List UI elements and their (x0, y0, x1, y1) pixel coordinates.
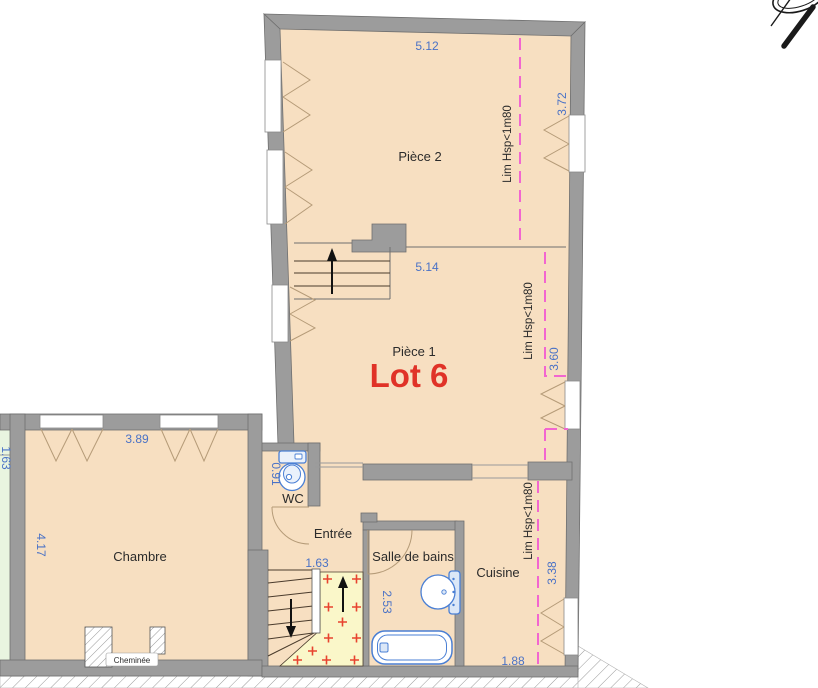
sdb-label: Salle de bains (372, 549, 454, 564)
window-piece1-right (565, 381, 580, 429)
wall-piece1-south-b (528, 462, 572, 480)
entree-label: Entrée (314, 526, 352, 541)
window-piece2-right (569, 115, 585, 172)
wall-wc-right (308, 443, 320, 506)
dim-piece1-width: 5.14 (415, 260, 439, 274)
dim-cuisine-width: 1.88 (501, 654, 525, 668)
dim-stair-width: 1.63 (305, 556, 329, 570)
window-piece1-left (272, 285, 288, 342)
dim-chambre-depth: 4.17 (34, 533, 48, 557)
wall-lower-bottom (262, 666, 578, 677)
wall-piece1-south-a (363, 464, 472, 480)
cheminee-label: Cheminée (114, 656, 151, 665)
window-chambre-2 (160, 415, 218, 428)
dim-wc-depth: 0.91 (269, 462, 283, 486)
floor-plan: Pièce 2 Pièce 1 Lot 6 Chambre WC Entrée … (0, 0, 818, 688)
wall-sdb-stub (361, 513, 377, 522)
floor-plan-drawing: Pièce 2 Pièce 1 Lot 6 Chambre WC Entrée … (0, 0, 818, 688)
dim-piece1-depth: 3.60 (547, 347, 561, 371)
window-piece2-left-2 (267, 150, 283, 224)
window-cuisine-right (564, 598, 578, 655)
bathtub-icon (372, 631, 452, 664)
cuisine-label: Cuisine (476, 565, 519, 580)
dim-piece2-depth: 3.72 (555, 92, 569, 116)
limit-label-cuisine: Lim Hsp<1m80 (523, 482, 535, 560)
window-chambre-1 (40, 415, 103, 428)
dim-chambre-width: 3.89 (125, 432, 149, 446)
wall-stair-left (248, 550, 268, 676)
dim-cuisine-depth: 3.38 (545, 561, 559, 585)
dim-sdb-depth: 2.53 (380, 590, 394, 614)
window-piece2-left-1 (265, 60, 281, 132)
dim-left-edge-clipped: 1.63 (0, 446, 13, 470)
dim-piece2-width: 5.12 (415, 39, 439, 53)
wc-label: WC (282, 491, 304, 506)
lot-label: Lot 6 (370, 357, 449, 394)
chambre-label: Chambre (113, 549, 166, 564)
stair-handrail (312, 569, 320, 633)
limit-label-piece2: Lim Hsp<1m80 (502, 105, 514, 183)
chambre-floor (25, 428, 250, 662)
wall-chambre-top (0, 414, 262, 430)
piece2-label: Pièce 2 (398, 149, 441, 164)
compass-icon (769, 0, 818, 46)
limit-label-piece1: Lim Hsp<1m80 (523, 282, 535, 360)
